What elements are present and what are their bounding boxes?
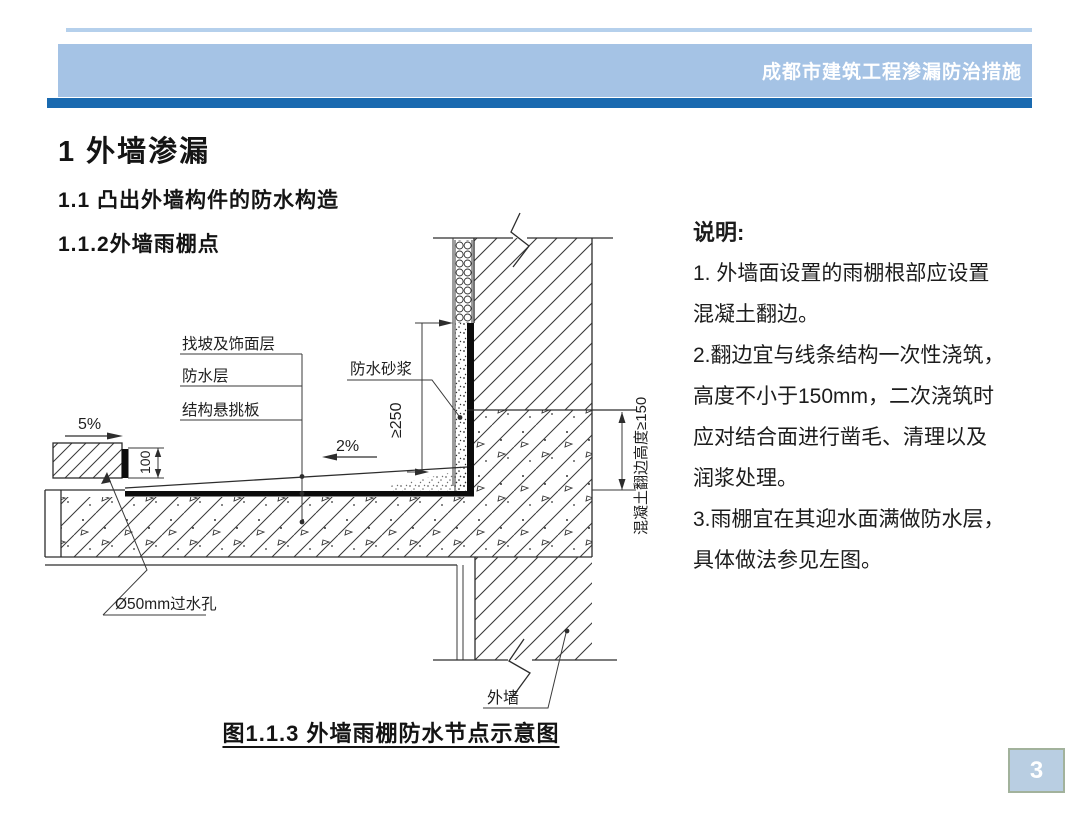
concrete-flange xyxy=(474,410,592,497)
label-waterproof-layer: 防水层 xyxy=(182,367,229,385)
page-number-badge: 3 xyxy=(1008,748,1065,793)
wall-hatch xyxy=(474,238,592,410)
label-waterproof-mortar: 防水砂浆 xyxy=(350,360,412,378)
note-line: 混凝土翻边。 xyxy=(693,294,1065,335)
header-title: 成都市建筑工程渗漏防治措施 xyxy=(762,57,1022,84)
header-band: 成都市建筑工程渗漏防治措施 xyxy=(58,44,1032,97)
label-edge-height: 100 xyxy=(137,450,153,474)
note-line: 高度不小于150mm，二次浇筑时 xyxy=(693,376,1065,417)
canopy-waterproof-detail-diagram: 5% 100 Ø50mm过水孔 找坡及饰面层 防水层 结构悬挑板 2% 防水砂浆… xyxy=(30,205,690,725)
section-title: 1 外墙渗漏 xyxy=(58,128,210,170)
label-exterior-wall: 外墙 xyxy=(487,689,519,707)
note-line: 1. 外墙面设置的雨棚根部应设置 xyxy=(693,253,1065,294)
label-flange-height-dimension: 混凝土翻边高度≥150 xyxy=(633,397,650,535)
accent-stripe xyxy=(47,98,1032,108)
label-slope-finish-layer: 找坡及饰面层 xyxy=(182,335,275,353)
note-line: 具体做法参见左图。 xyxy=(693,540,1065,581)
insulation-layer xyxy=(455,240,472,323)
waterproof-membrane-horizontal xyxy=(125,491,474,497)
note-line: 应对结合面进行凿毛、清理以及 xyxy=(693,417,1065,458)
drip-edge-block xyxy=(53,443,122,478)
label-top-slope: 2% xyxy=(336,438,359,455)
slab-body xyxy=(61,497,592,557)
note-line: 润浆处理。 xyxy=(693,458,1065,499)
page-number: 3 xyxy=(1030,757,1043,785)
lower-wall-section xyxy=(433,557,617,699)
mortar-layer xyxy=(455,323,467,491)
label-drain-hole: Ø50mm过水孔 xyxy=(115,595,217,613)
note-line: 3.雨棚宜在其迎水面满做防水层， xyxy=(693,499,1065,540)
upper-wall-section xyxy=(61,213,636,557)
label-upturn-dimension: ≥250 xyxy=(388,402,405,438)
top-rule xyxy=(66,28,1032,32)
notes-heading: 说明: xyxy=(693,212,1065,253)
slide: 成都市建筑工程渗漏防治措施 1 外墙渗漏 1.1 凸出外墙构件的防水构造 1.1… xyxy=(0,0,1080,813)
label-edge-slope: 5% xyxy=(78,416,101,433)
note-line: 2.翻边宜与线条结构一次性浇筑， xyxy=(693,335,1065,376)
drip-edge-waterstop xyxy=(122,449,129,478)
label-structural-slab: 结构悬挑板 xyxy=(182,401,260,419)
figure-caption: 图1.1.3 外墙雨棚防水节点示意图 xyxy=(196,716,586,748)
notes-panel: 说明: 1. 外墙面设置的雨棚根部应设置 混凝土翻边。 2.翻边宜与线条结构一次… xyxy=(693,212,1065,581)
